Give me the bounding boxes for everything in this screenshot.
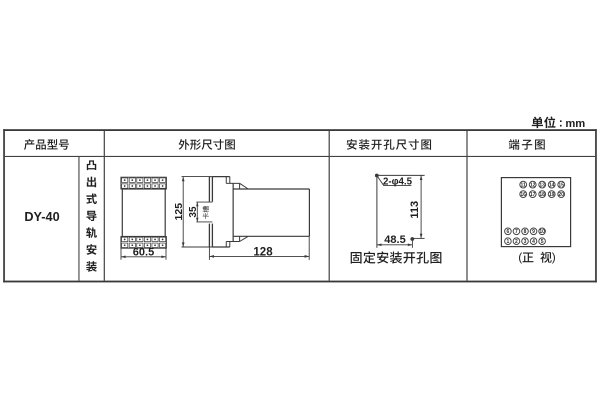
svg-text:2-φ4.5: 2-φ4.5 bbox=[383, 176, 413, 187]
svg-text:12: 12 bbox=[530, 182, 536, 188]
svg-text:35: 35 bbox=[188, 206, 199, 218]
svg-text:DY-40: DY-40 bbox=[24, 210, 59, 224]
svg-text:113: 113 bbox=[409, 201, 421, 219]
svg-text:20: 20 bbox=[558, 192, 564, 198]
svg-text:15: 15 bbox=[558, 182, 564, 188]
svg-text:13: 13 bbox=[539, 182, 545, 188]
svg-text:6: 6 bbox=[507, 229, 510, 235]
svg-text::: : bbox=[559, 117, 563, 129]
svg-text:48.5: 48.5 bbox=[384, 234, 405, 246]
svg-text:7: 7 bbox=[515, 229, 518, 235]
svg-text:9: 9 bbox=[532, 229, 535, 235]
svg-text:18: 18 bbox=[539, 192, 545, 198]
svg-text:5: 5 bbox=[541, 239, 544, 245]
svg-text:60.5: 60.5 bbox=[133, 246, 154, 258]
svg-text:(: ( bbox=[518, 250, 522, 264]
svg-text:10: 10 bbox=[539, 229, 545, 235]
svg-text:14: 14 bbox=[549, 182, 555, 188]
svg-text:4: 4 bbox=[532, 239, 535, 245]
svg-text:16: 16 bbox=[520, 192, 526, 198]
svg-text:11: 11 bbox=[521, 182, 527, 188]
svg-text:19: 19 bbox=[549, 192, 555, 198]
svg-text:2: 2 bbox=[515, 239, 518, 245]
svg-text:128: 128 bbox=[253, 246, 273, 258]
svg-text:1: 1 bbox=[507, 239, 510, 245]
svg-text:mm: mm bbox=[565, 118, 585, 130]
svg-text:8: 8 bbox=[524, 229, 527, 235]
svg-text:17: 17 bbox=[530, 192, 536, 198]
svg-text:125: 125 bbox=[173, 203, 185, 221]
svg-text:): ) bbox=[552, 250, 556, 264]
svg-text:3: 3 bbox=[524, 239, 527, 245]
